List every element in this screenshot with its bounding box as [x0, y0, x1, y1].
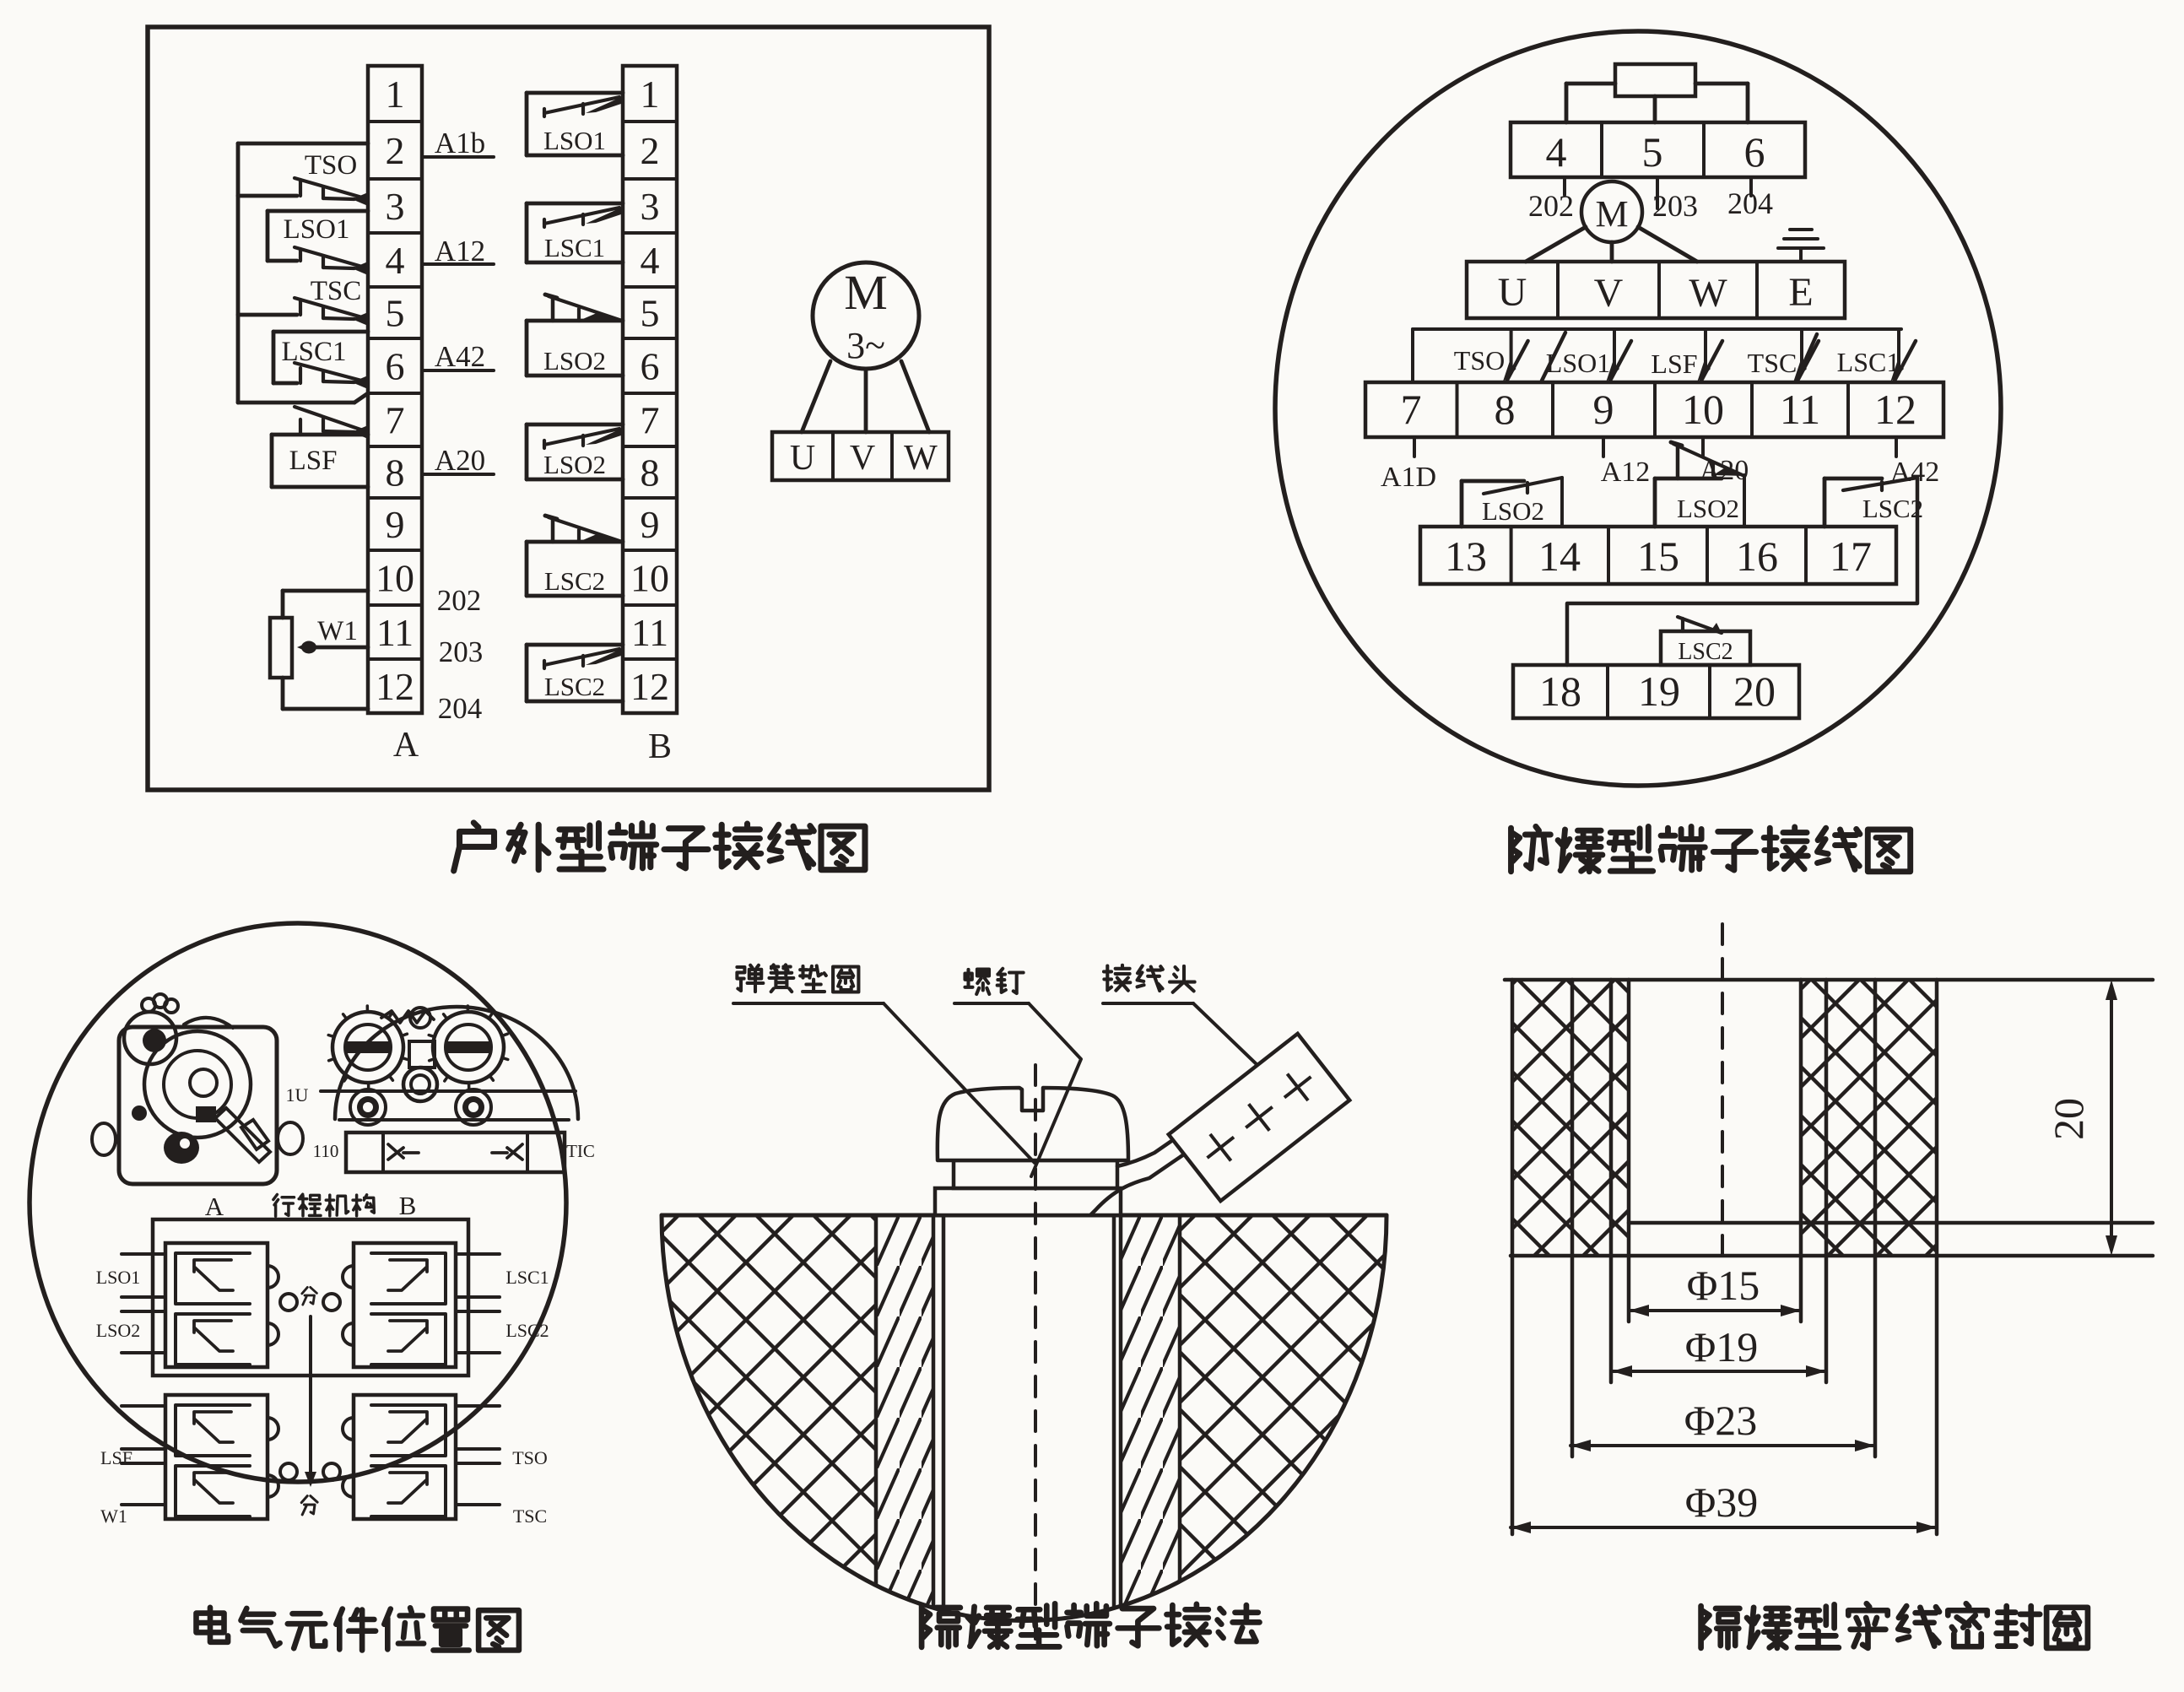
svg-text:2: 2: [641, 129, 660, 172]
svg-text:12: 12: [1874, 386, 1916, 433]
svg-text:LSC1: LSC1: [544, 233, 605, 262]
svg-text:5: 5: [1642, 128, 1663, 176]
svg-text:LSC2: LSC2: [505, 1320, 549, 1341]
svg-text:W: W: [1689, 271, 1727, 316]
svg-text:7: 7: [641, 399, 660, 442]
svg-text:5: 5: [386, 292, 405, 335]
svg-text:U: U: [1498, 270, 1527, 315]
svg-text:A42: A42: [1890, 457, 1940, 488]
svg-text:W: W: [904, 439, 938, 478]
svg-text:10: 10: [1682, 386, 1724, 433]
svg-text:1: 1: [641, 73, 660, 116]
svg-text:202: 202: [1528, 189, 1574, 223]
svg-text:7: 7: [1401, 386, 1422, 433]
svg-text:3: 3: [641, 185, 660, 228]
svg-text:A: A: [205, 1192, 224, 1221]
svg-text:6: 6: [386, 345, 405, 388]
svg-text:203: 203: [1652, 189, 1698, 223]
svg-text:2: 2: [386, 129, 405, 172]
svg-text:LSF: LSF: [100, 1447, 132, 1468]
svg-text:12: 12: [630, 665, 669, 708]
svg-text:TSO: TSO: [1454, 345, 1505, 376]
svg-text:B: B: [648, 727, 672, 766]
svg-text:E: E: [1788, 270, 1813, 315]
svg-text:V: V: [850, 439, 875, 478]
svg-text:5: 5: [641, 292, 660, 335]
svg-text:6: 6: [1744, 128, 1765, 176]
svg-text:15: 15: [1637, 532, 1679, 580]
svg-text:LSC2: LSC2: [544, 566, 605, 596]
svg-text:LSC1: LSC1: [281, 337, 346, 367]
svg-text:9: 9: [1593, 386, 1614, 433]
svg-text:B: B: [399, 1191, 417, 1220]
svg-text:LSO1: LSO1: [284, 214, 350, 245]
svg-text:LSO2: LSO2: [543, 450, 606, 479]
svg-text:19: 19: [1638, 668, 1680, 715]
svg-text:13: 13: [1445, 532, 1487, 580]
svg-text:8: 8: [386, 451, 405, 495]
svg-text:10: 10: [376, 557, 414, 600]
svg-text:TSO: TSO: [305, 150, 357, 181]
svg-text:A20: A20: [435, 444, 485, 477]
svg-text:TSC: TSC: [513, 1506, 547, 1527]
svg-text:3~: 3~: [846, 325, 885, 366]
svg-text:18: 18: [1539, 668, 1581, 715]
svg-text:TIC: TIC: [566, 1141, 595, 1161]
svg-text:A1b: A1b: [435, 127, 485, 159]
svg-text:4: 4: [386, 239, 405, 282]
svg-text:6: 6: [641, 345, 660, 388]
svg-text:204: 204: [1727, 186, 1773, 220]
svg-text:1U: 1U: [286, 1084, 309, 1105]
svg-text:1: 1: [386, 73, 405, 116]
svg-text:A1D: A1D: [1381, 462, 1436, 493]
svg-text:A42: A42: [435, 340, 485, 373]
svg-text:Φ15: Φ15: [1687, 1262, 1760, 1309]
svg-text:11: 11: [631, 611, 668, 654]
svg-text:9: 9: [386, 503, 405, 546]
svg-text:LSO2: LSO2: [1677, 494, 1739, 523]
svg-text:20: 20: [2045, 1098, 2092, 1140]
svg-text:17: 17: [1830, 532, 1872, 580]
svg-text:20: 20: [1733, 668, 1776, 715]
svg-text:11: 11: [376, 611, 414, 654]
svg-text:202: 202: [437, 584, 482, 617]
svg-text:Φ19: Φ19: [1685, 1323, 1759, 1370]
svg-text:14: 14: [1538, 532, 1581, 580]
svg-text:4: 4: [641, 239, 660, 282]
svg-text:M: M: [844, 265, 888, 320]
svg-text:LSO1: LSO1: [1546, 348, 1610, 378]
svg-text:LSO1: LSO1: [96, 1267, 141, 1288]
svg-text:LSO1: LSO1: [543, 126, 606, 155]
svg-text:LSO2: LSO2: [543, 346, 606, 376]
svg-text:W1: W1: [100, 1506, 127, 1527]
svg-text:10: 10: [630, 557, 669, 600]
svg-text:TSO: TSO: [512, 1447, 548, 1468]
svg-text:LSO2: LSO2: [1482, 496, 1544, 526]
svg-text:LSF: LSF: [289, 446, 338, 476]
svg-text:Φ39: Φ39: [1685, 1478, 1759, 1526]
svg-text:LSO2: LSO2: [96, 1320, 141, 1341]
svg-text:3: 3: [386, 185, 405, 228]
svg-text:M: M: [1595, 193, 1628, 235]
svg-text:204: 204: [438, 692, 483, 725]
svg-text:W1: W1: [317, 616, 358, 646]
svg-text:LSC1: LSC1: [1837, 347, 1900, 377]
svg-text:11: 11: [1780, 386, 1820, 433]
svg-text:9: 9: [641, 503, 660, 546]
svg-text:V: V: [1594, 271, 1624, 316]
svg-text:LSC2: LSC2: [544, 672, 605, 701]
svg-text:A12: A12: [1601, 457, 1651, 488]
svg-text:110: 110: [313, 1141, 339, 1161]
svg-text:8: 8: [641, 451, 660, 495]
svg-text:7: 7: [386, 399, 405, 442]
svg-text:U: U: [790, 439, 815, 478]
svg-text:LSC2: LSC2: [1862, 494, 1923, 523]
svg-text:Φ23: Φ23: [1684, 1397, 1758, 1444]
svg-text:4: 4: [1546, 128, 1567, 176]
svg-text:LSC2: LSC2: [1678, 639, 1733, 665]
svg-text:203: 203: [439, 635, 484, 668]
svg-text:12: 12: [376, 665, 414, 708]
svg-text:LSF: LSF: [1651, 349, 1697, 379]
svg-text:TSC: TSC: [1748, 348, 1797, 378]
svg-text:A: A: [393, 726, 419, 765]
svg-text:16: 16: [1736, 532, 1778, 580]
svg-text:TSC: TSC: [311, 276, 362, 306]
svg-text:LSC1: LSC1: [505, 1267, 549, 1288]
svg-text:8: 8: [1495, 386, 1516, 433]
